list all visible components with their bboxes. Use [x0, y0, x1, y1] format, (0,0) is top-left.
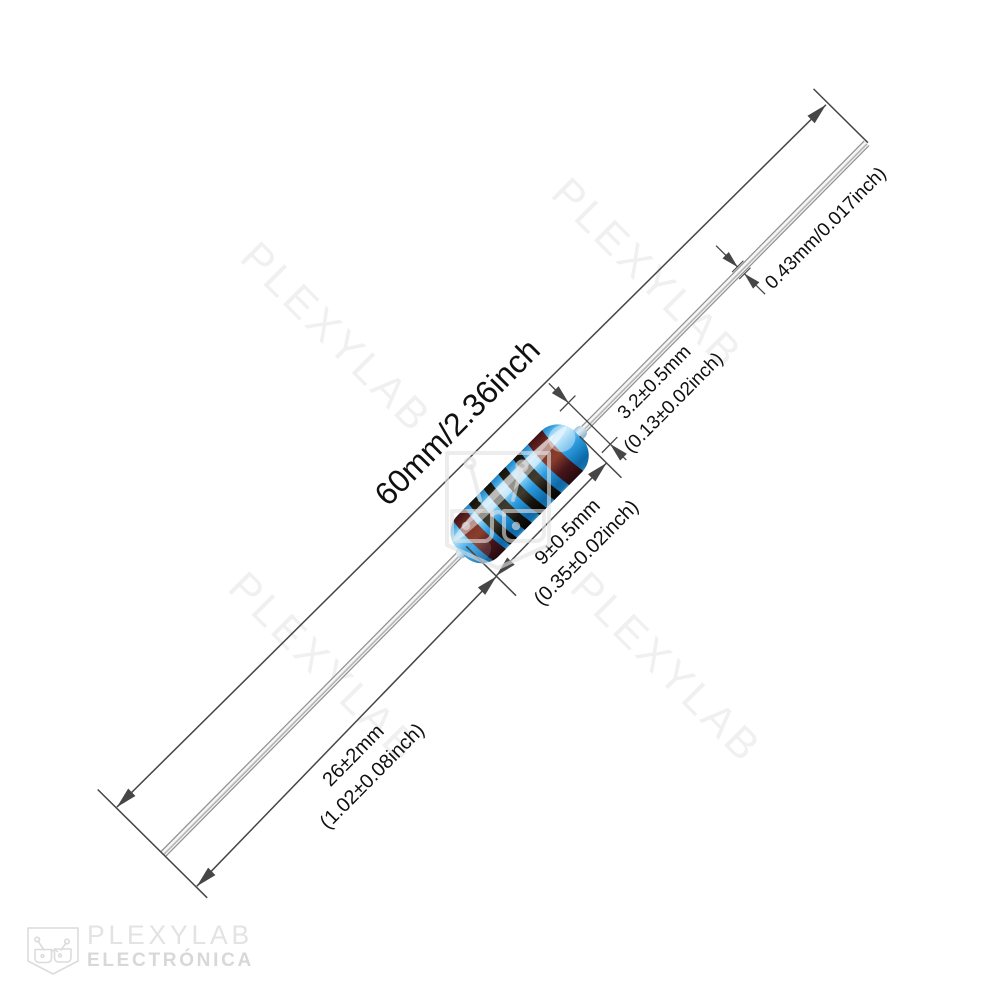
svg-text:PLEXYLAB: PLEXYLAB	[87, 920, 253, 950]
svg-text:ELECTRÓNICA: ELECTRÓNICA	[87, 949, 254, 971]
